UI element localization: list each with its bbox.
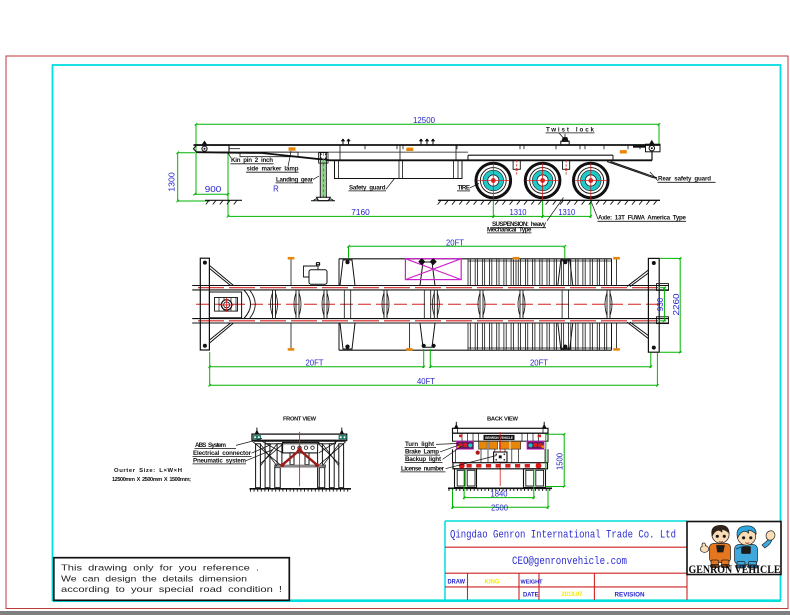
svg-text:2019.07: 2019.07 <box>562 591 583 598</box>
svg-text:FRONT VIEW: FRONT VIEW <box>283 416 317 422</box>
svg-text:40FT: 40FT <box>417 377 435 386</box>
svg-text:DATE: DATE <box>523 591 539 598</box>
svg-text:2260: 2260 <box>672 293 681 316</box>
svg-text:1300: 1300 <box>167 172 177 192</box>
svg-text:License number: License number <box>401 465 445 472</box>
svg-text:TIRE: TIRE <box>458 184 471 191</box>
svg-text:ABS System: ABS System <box>195 442 226 449</box>
svg-text:according to your special road: according to your special road condition… <box>61 584 282 594</box>
svg-text:BACK VIEW: BACK VIEW <box>487 416 519 422</box>
svg-text:20FT: 20FT <box>306 358 324 367</box>
svg-text:20FT: 20FT <box>446 238 464 247</box>
svg-text:KING: KING <box>485 579 500 586</box>
svg-text:CEO@genronvehicle.com: CEO@genronvehicle.com <box>512 556 627 568</box>
svg-text:2500: 2500 <box>491 503 508 513</box>
svg-text:Pneumatic system: Pneumatic system <box>193 457 246 464</box>
svg-text:12500mm X 2500mm X 1500mm;: 12500mm X 2500mm X 1500mm; <box>112 477 191 483</box>
svg-text:Backup light: Backup light <box>405 456 441 463</box>
svg-text:GENRON VEHICLE: GENRON VEHICLE <box>689 564 781 576</box>
svg-text:7160: 7160 <box>351 207 370 217</box>
svg-text:Kin pin 2 inch: Kin pin 2 inch <box>231 157 273 164</box>
svg-text:930: 930 <box>656 297 665 311</box>
svg-text:R: R <box>273 185 279 194</box>
svg-text:1840: 1840 <box>491 488 508 498</box>
svg-text:DRAW: DRAW <box>448 579 466 586</box>
svg-text:20FT: 20FT <box>530 358 548 367</box>
svg-text:Twist lock: Twist lock <box>546 126 595 133</box>
svg-text:Ourter Size: L×W×H: Ourter Size: L×W×H <box>114 468 182 474</box>
svg-text:REVISION: REVISION <box>615 591 645 598</box>
svg-text:900: 900 <box>205 184 222 194</box>
svg-text:1500: 1500 <box>555 452 564 470</box>
svg-text:Qingdao Genron International T: Qingdao Genron International Trade Co. L… <box>450 530 676 542</box>
svg-text:12500: 12500 <box>413 115 435 125</box>
svg-text:Brake Lamp: Brake Lamp <box>405 449 439 456</box>
svg-text:GENRON VEHICLE: GENRON VEHICLE <box>485 436 513 440</box>
svg-text:side marker lamp: side marker lamp <box>247 166 299 173</box>
svg-text:WEIGHT: WEIGHT <box>521 579 544 585</box>
svg-text:Axle: 13T FUWA America Type: Axle: 13T FUWA America Type <box>598 215 687 222</box>
svg-text:We can design the details dime: We can design the details dimension <box>61 573 247 583</box>
svg-text:This drawing only for you refe: This drawing only for you reference . <box>61 563 259 573</box>
svg-text:1310: 1310 <box>558 207 575 217</box>
svg-text:Electrical connector: Electrical connector <box>193 450 252 457</box>
svg-text:1310: 1310 <box>510 207 527 217</box>
svg-text:Turn light: Turn light <box>405 441 434 448</box>
svg-text:Landing gear: Landing gear <box>276 176 314 183</box>
svg-text:Safety guard: Safety guard <box>349 184 386 191</box>
svg-text:Rear safety guard: Rear safety guard <box>658 176 711 183</box>
